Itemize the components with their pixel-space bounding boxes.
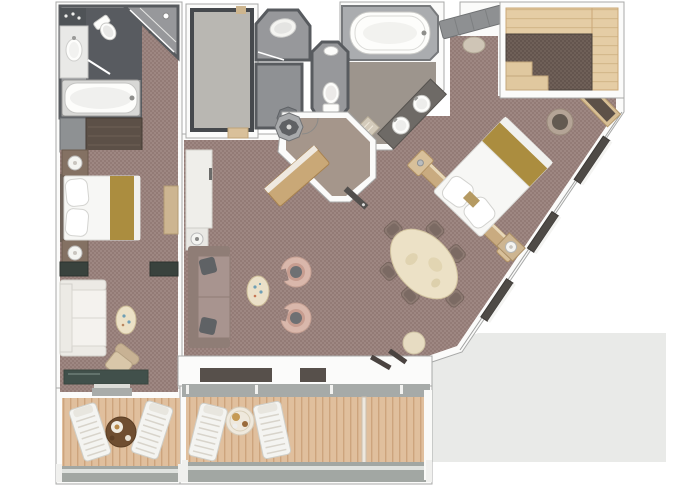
shower-room bbox=[256, 10, 310, 60]
floor-plan-canvas bbox=[0, 0, 680, 486]
round-table bbox=[226, 407, 254, 435]
hand-basin bbox=[324, 47, 338, 56]
counter bbox=[60, 8, 86, 26]
bathtub bbox=[62, 80, 140, 116]
sill bbox=[182, 384, 430, 397]
wardrobe-unit bbox=[592, 8, 618, 90]
side-console bbox=[60, 262, 88, 276]
threshold bbox=[228, 128, 248, 138]
sofa bbox=[188, 246, 230, 348]
bed bbox=[64, 176, 140, 240]
shelf-unit bbox=[506, 76, 548, 90]
throw-pillow bbox=[199, 317, 218, 336]
suite-floor-plan bbox=[0, 0, 680, 486]
bedroom-two-wardrobe bbox=[60, 118, 142, 152]
open-door-glass bbox=[200, 368, 272, 382]
toilet-room bbox=[312, 42, 348, 118]
veranda-main bbox=[182, 384, 432, 482]
walk-in-closet bbox=[186, 4, 258, 138]
loveseat bbox=[60, 280, 106, 356]
deck-divider bbox=[362, 397, 366, 464]
toilet bbox=[323, 83, 339, 113]
pillow bbox=[65, 178, 90, 207]
master-walk-in-wardrobe bbox=[500, 2, 624, 98]
vanity-sink bbox=[60, 26, 88, 78]
whirlpool-tub bbox=[342, 6, 438, 60]
oval-table bbox=[116, 306, 136, 334]
railing bbox=[56, 464, 184, 482]
open-door-glass bbox=[300, 368, 326, 382]
wall-console bbox=[186, 150, 212, 228]
pouf bbox=[463, 37, 485, 53]
dresser-bench bbox=[164, 186, 178, 234]
veranda-bedroom-two bbox=[56, 388, 184, 482]
stool bbox=[403, 332, 425, 354]
shower-head-icon bbox=[163, 13, 169, 19]
door-track bbox=[92, 388, 132, 396]
bath-dark-floor bbox=[86, 8, 142, 80]
background-neighbor-area bbox=[428, 333, 666, 462]
coffee-table bbox=[247, 276, 269, 306]
bedroom-two bbox=[60, 150, 178, 392]
guest-bathroom bbox=[60, 6, 142, 118]
side-console bbox=[150, 262, 178, 276]
pillow bbox=[65, 208, 89, 237]
headboard bbox=[60, 174, 64, 242]
round-table bbox=[106, 417, 136, 447]
